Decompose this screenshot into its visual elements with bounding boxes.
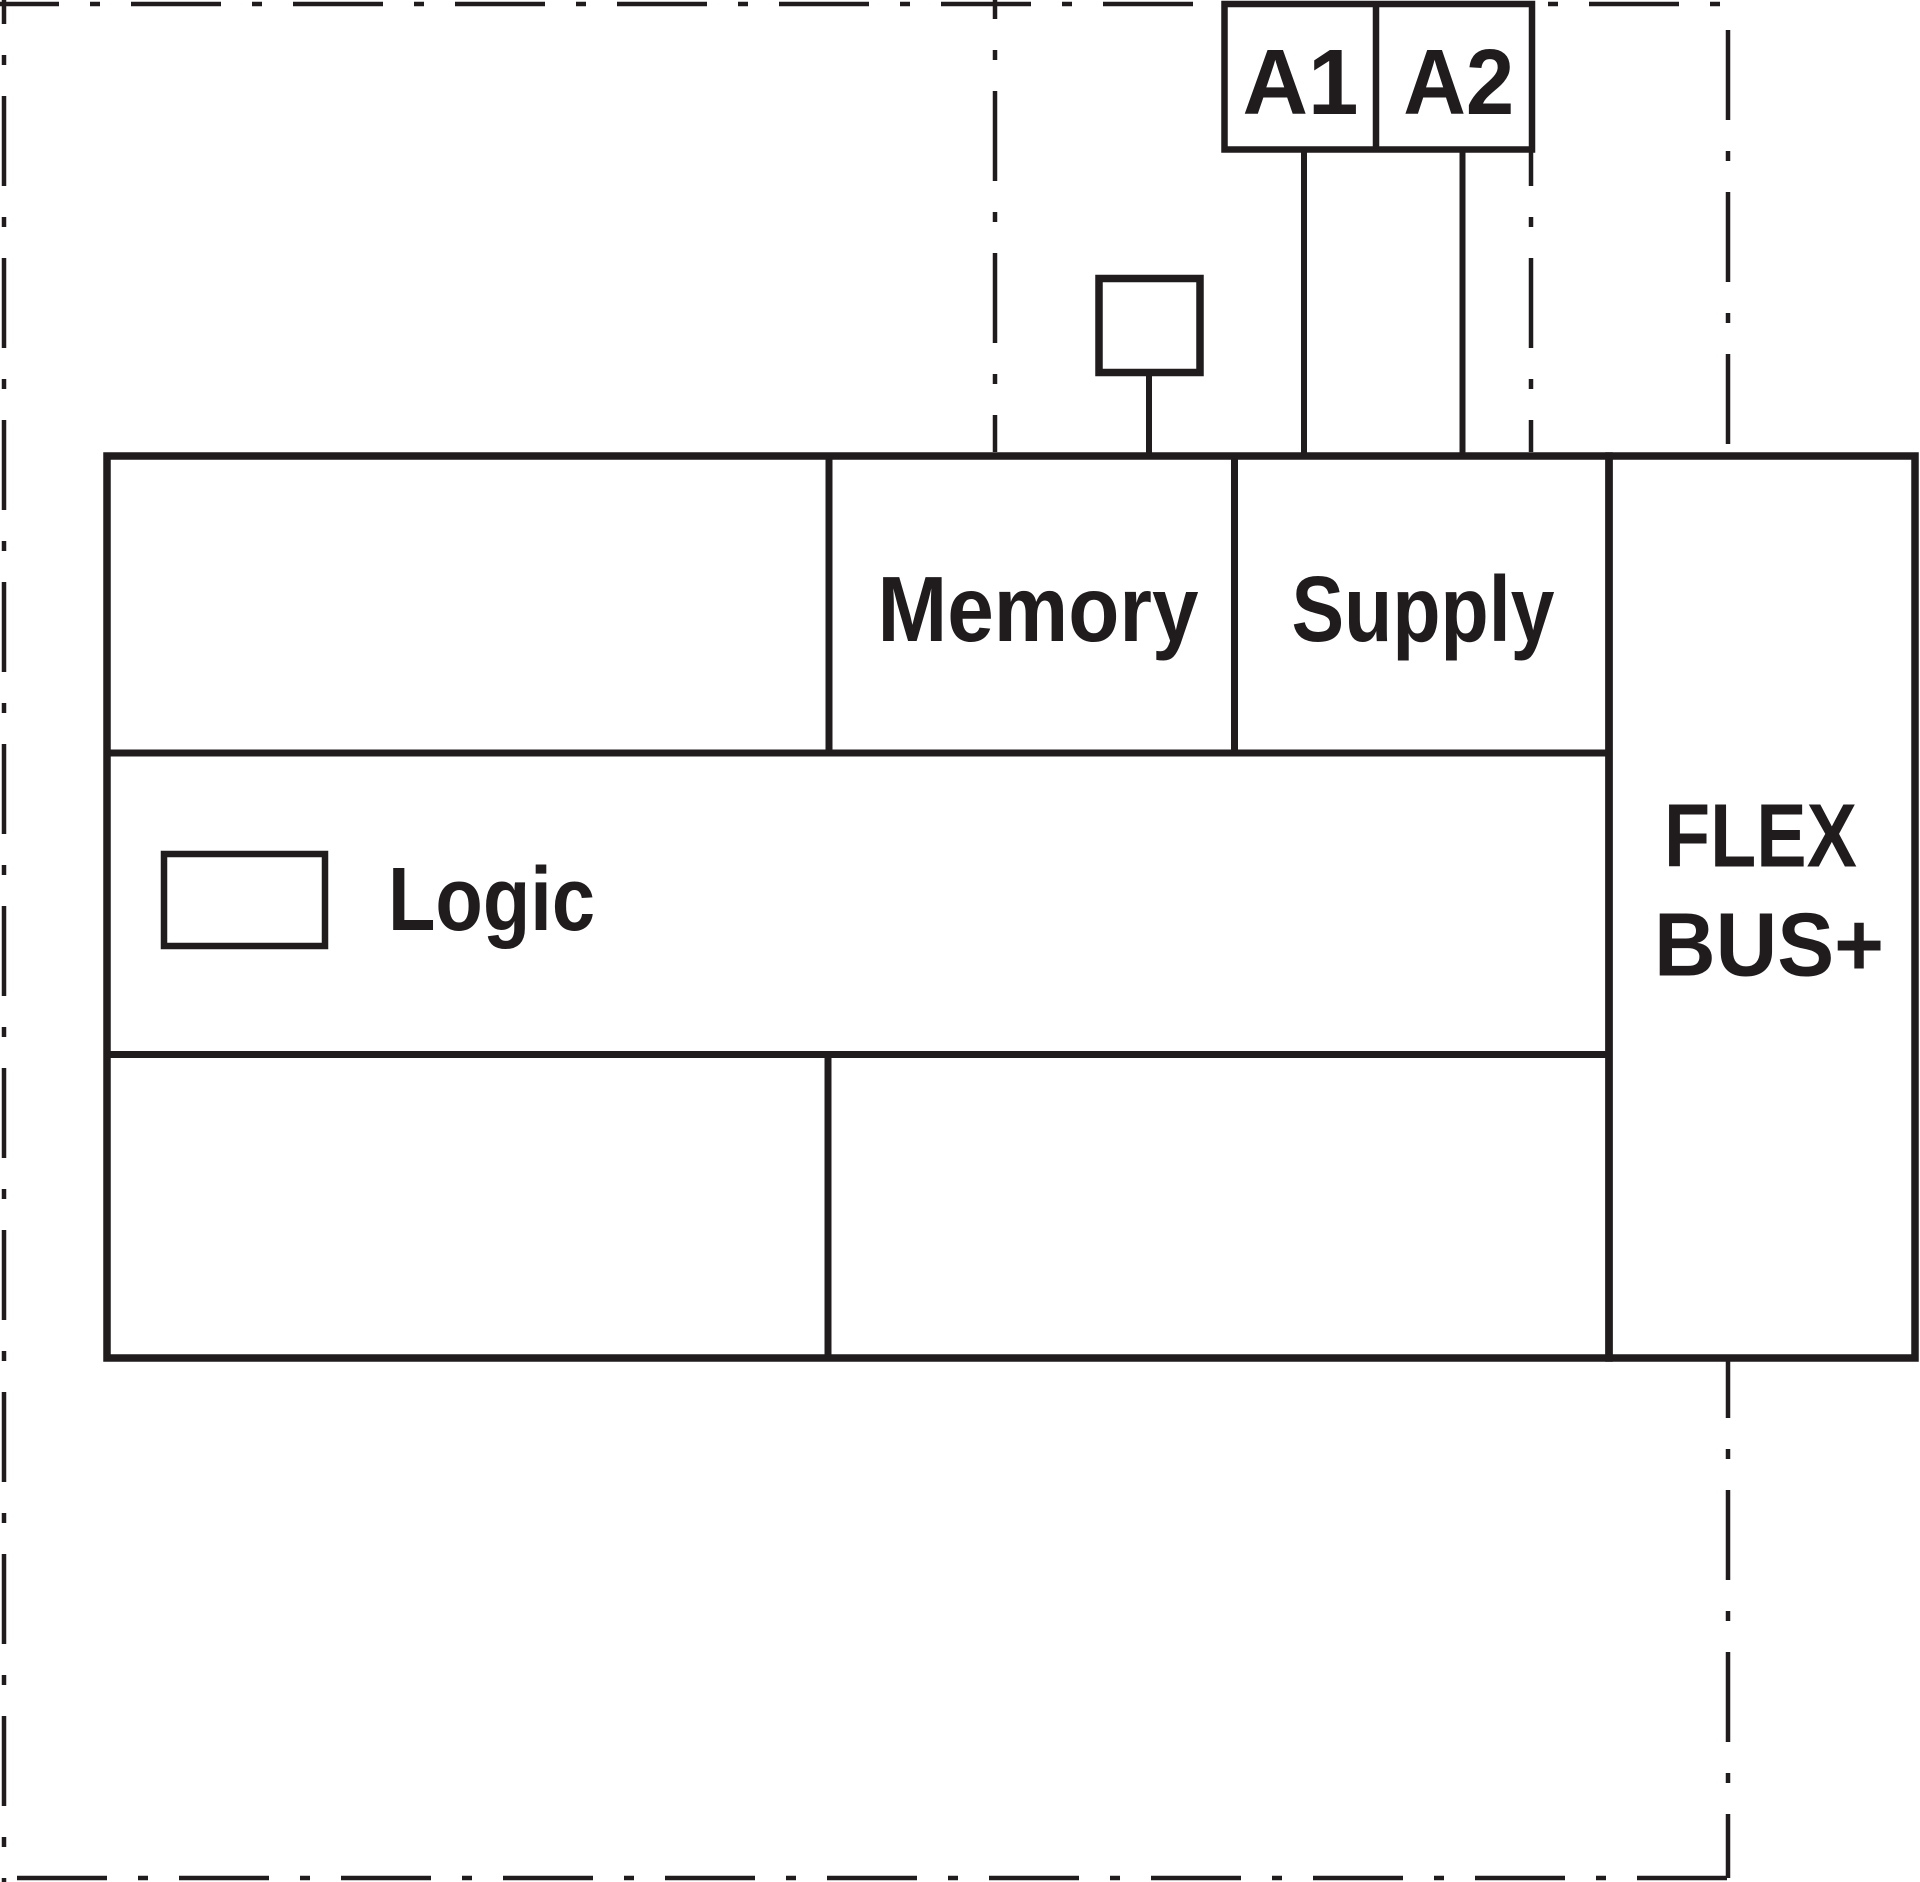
svg-text:A2: A2	[1403, 30, 1514, 134]
svg-text:Supply: Supply	[1292, 557, 1555, 661]
svg-text:Logic: Logic	[388, 850, 595, 950]
svg-text:Memory: Memory	[878, 557, 1199, 661]
svg-text:A1: A1	[1243, 30, 1359, 134]
svg-text:FLEX: FLEX	[1664, 787, 1857, 887]
svg-text:BUS+: BUS+	[1654, 895, 1884, 995]
